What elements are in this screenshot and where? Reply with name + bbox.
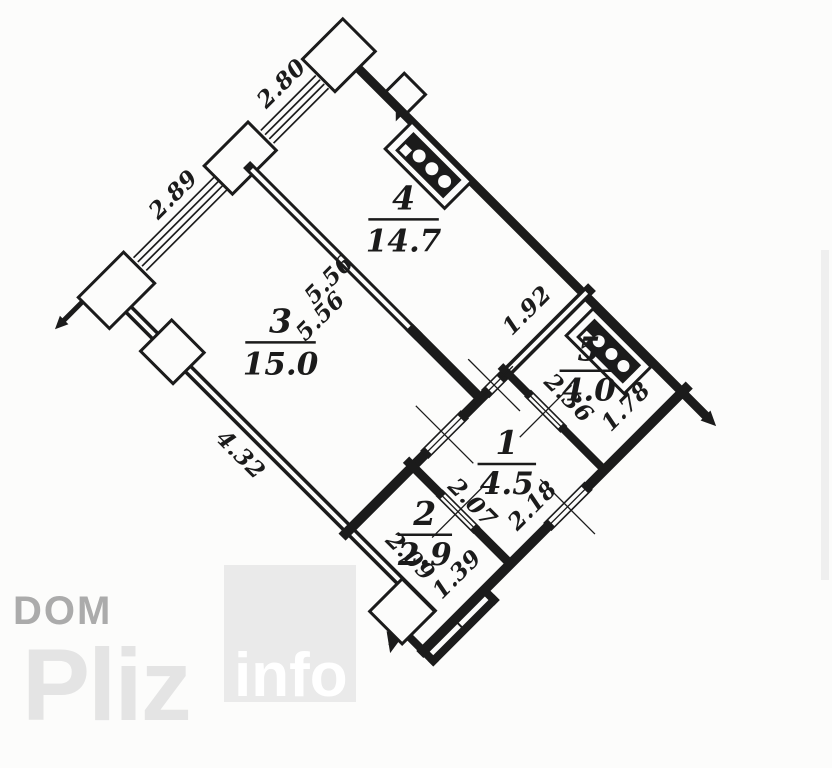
watermark-info-text: info	[234, 641, 348, 710]
room-2-number: 2	[412, 494, 436, 533]
room-labels: 3 15.0 4 14.7 5 4.0 1 4.5 2	[184, 129, 662, 607]
room-2-area: 2.9	[397, 537, 452, 573]
room-4-number: 4	[392, 178, 415, 217]
room-5-number: 5	[577, 330, 600, 369]
room-4-area: 14.7	[366, 223, 442, 259]
continuation-arrow-left	[51, 297, 87, 333]
floor-plan: 2.80 2.89 5.56 5.56 1.92 2.36 1.78 4.32 …	[36, 8, 737, 709]
watermark: DOM Pliz info	[13, 565, 356, 742]
scan-artifact	[821, 250, 829, 580]
room-1-area: 4.5	[480, 466, 534, 502]
floor-plan-canvas: DOM Pliz info	[0, 0, 832, 768]
continuation-arrow-right	[677, 387, 721, 431]
scanned-floor-plan-page: DOM Pliz info	[0, 0, 832, 768]
room-3-number: 3	[269, 301, 292, 340]
watermark-pliz-text: Pliz	[22, 628, 190, 742]
wall-pier	[370, 579, 435, 644]
room-1-label: 1 4.5	[479, 423, 535, 502]
watermark-dom-text: DOM	[13, 589, 112, 633]
dim-left-wall: 4.32	[211, 425, 271, 485]
room-1-number: 1	[495, 423, 518, 462]
room-3-area: 15.0	[243, 346, 319, 382]
room-5-area: 4.0	[562, 373, 616, 409]
dim-window-left: 2.89	[143, 164, 204, 225]
